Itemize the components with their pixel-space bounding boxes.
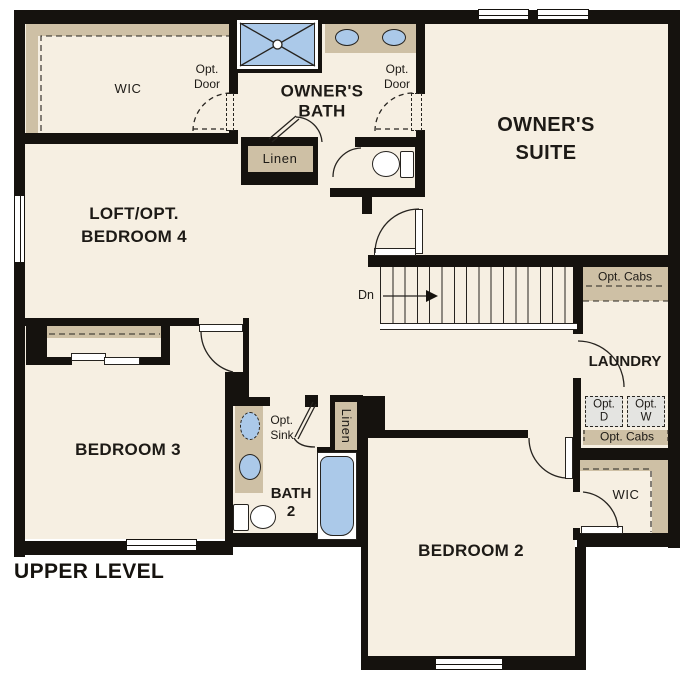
bedroom2-door-leaf xyxy=(565,437,573,479)
wall xyxy=(573,460,580,492)
wall xyxy=(225,397,270,406)
page-title: UPPER LEVEL xyxy=(14,560,164,584)
bedroom3-closet-bypass-door xyxy=(71,353,106,361)
stairs-opening-jamb xyxy=(374,248,416,256)
stairs xyxy=(380,267,577,323)
bath2-label: BATH 2 xyxy=(271,485,312,521)
wall xyxy=(577,533,677,547)
window xyxy=(126,539,197,551)
stairs-dn-label: Dn xyxy=(358,288,374,304)
wall xyxy=(573,448,676,460)
opt-sink-label: Opt. Sink xyxy=(270,413,293,443)
sink-icon xyxy=(335,29,359,46)
wall xyxy=(14,10,25,557)
wall xyxy=(330,188,425,197)
floorplan-canvas: WIC Opt. Door OWNER'S BATH Opt. Door OWN… xyxy=(0,0,687,687)
optional-sink-icon xyxy=(240,412,260,440)
optional-door-leaf-suite xyxy=(411,93,422,131)
wall xyxy=(14,541,233,555)
loft-label: LOFT/OPT. BEDROOM 4 xyxy=(81,203,187,249)
bedroom3-door-leaf xyxy=(199,324,243,332)
toilet-bowl-icon xyxy=(372,151,400,177)
laundry-label: LAUNDRY xyxy=(589,353,662,371)
wall xyxy=(14,133,238,144)
window xyxy=(435,658,503,670)
wall xyxy=(573,378,581,450)
wall xyxy=(26,357,72,365)
wall xyxy=(361,396,385,438)
window xyxy=(478,9,529,20)
wall xyxy=(357,447,368,545)
wic-bed2-label: WIC xyxy=(612,487,639,503)
wall xyxy=(26,318,47,362)
opt-washer-label: Opt. W xyxy=(635,398,657,423)
wall xyxy=(575,547,586,668)
window xyxy=(14,195,25,263)
tub-icon xyxy=(320,456,354,536)
optional-door-leaf-wic xyxy=(226,93,234,131)
shower-pan-icon xyxy=(240,23,315,66)
stairs-rail xyxy=(380,323,577,330)
wic-bed2-door-leaf xyxy=(581,526,623,534)
wall xyxy=(416,12,425,94)
owners-suite-door-leaf xyxy=(415,209,423,254)
linen-owner-label: Linen xyxy=(263,151,298,167)
wic-owner-label: WIC xyxy=(114,81,141,97)
opt-cabs-upper-label: Opt. Cabs xyxy=(598,270,652,285)
toilet-tank-icon xyxy=(400,151,414,178)
opt-door-suite-label: Opt. Door xyxy=(384,62,410,92)
wall xyxy=(225,393,233,545)
bedroom2-label: BEDROOM 2 xyxy=(418,541,524,561)
owners-bath-label: OWNER'S BATH xyxy=(281,81,364,120)
opt-door-wic-label: Opt. Door xyxy=(194,62,220,92)
toilet-tank-icon xyxy=(233,504,249,531)
owners-suite-label: OWNER'S SUITE xyxy=(497,111,595,167)
wall xyxy=(383,430,528,438)
linen-bath2-label: Linen xyxy=(338,409,354,444)
bedroom3-closet-bypass-door xyxy=(104,357,140,365)
wall xyxy=(362,192,372,214)
sink-icon xyxy=(382,29,406,46)
opt-cabs-lower-label: Opt. Cabs xyxy=(600,430,654,445)
wall xyxy=(305,395,318,407)
opt-dryer-label: Opt. D xyxy=(593,398,615,423)
sink-icon xyxy=(239,454,261,480)
wall xyxy=(229,130,238,144)
wic-owner-shelf-left xyxy=(26,23,38,133)
wall xyxy=(368,255,668,267)
wall xyxy=(668,10,680,548)
wall xyxy=(139,357,170,365)
wall xyxy=(243,318,249,375)
wic-owner-shelf-top xyxy=(26,23,230,36)
window xyxy=(537,9,589,20)
bedroom3-label: BEDROOM 3 xyxy=(75,440,181,460)
